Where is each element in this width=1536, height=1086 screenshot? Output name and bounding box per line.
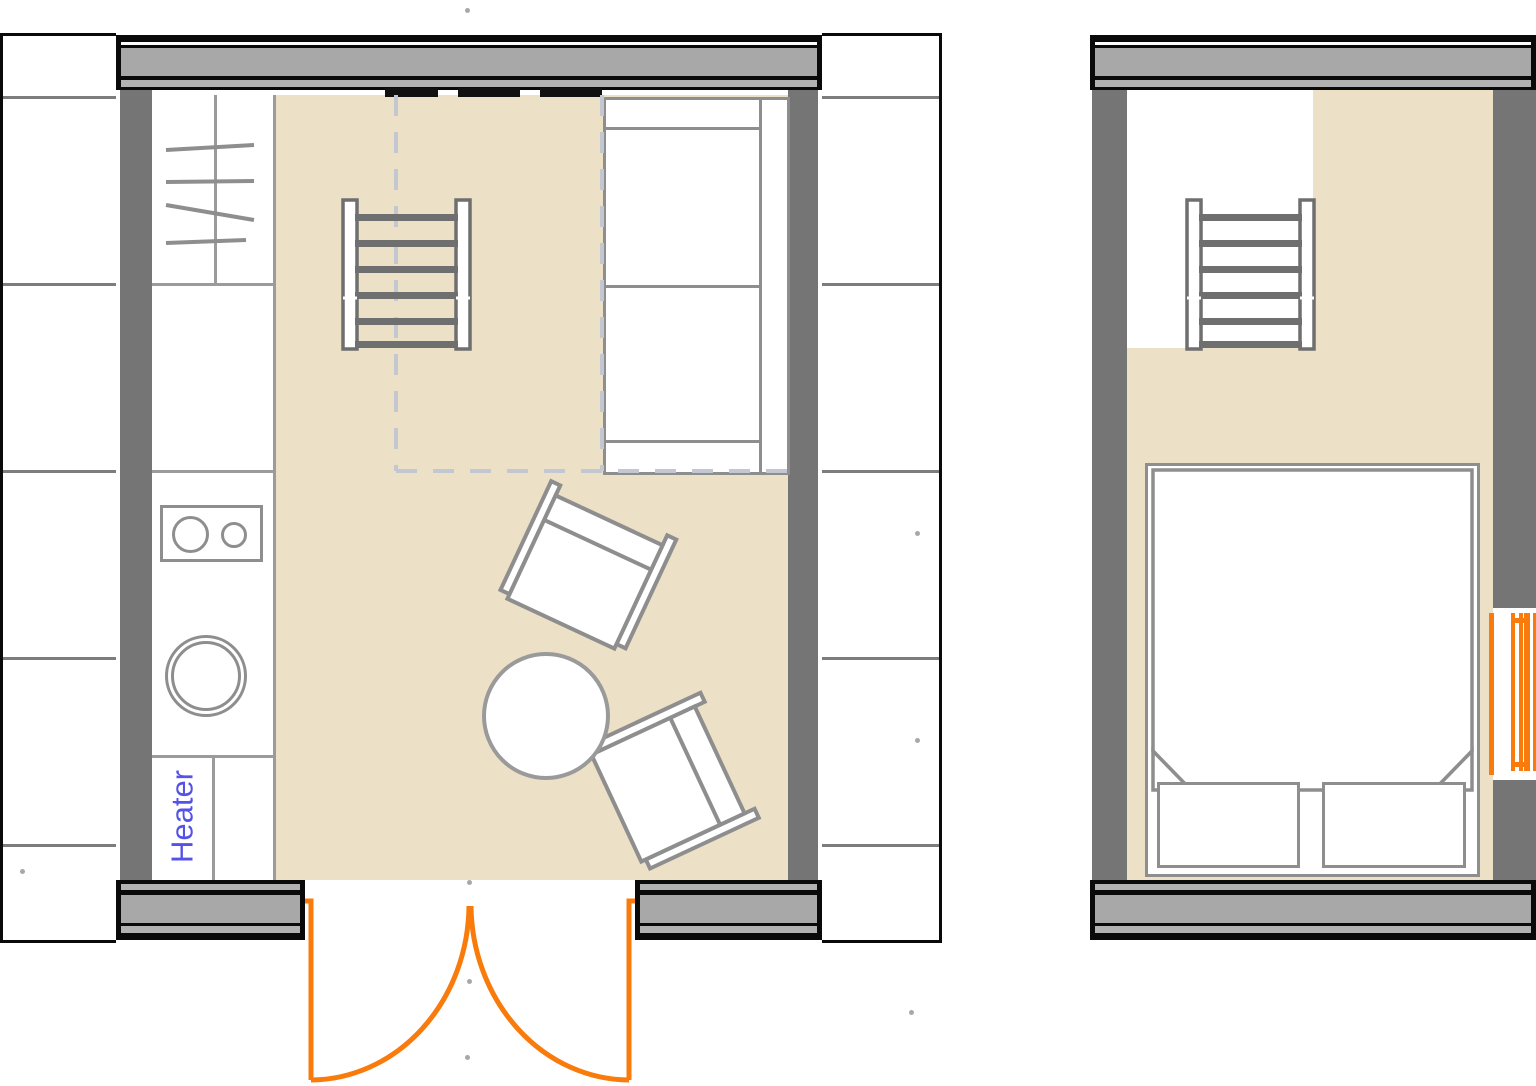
reference-dot xyxy=(467,979,472,984)
reference-dot xyxy=(465,8,470,13)
reference-dot xyxy=(909,1010,914,1015)
armchair-1[interactable] xyxy=(498,481,676,653)
round-table[interactable] xyxy=(484,654,608,778)
reference-dot xyxy=(465,1055,470,1060)
kitchen-rack-icon xyxy=(166,145,254,243)
pillow-left[interactable] xyxy=(1157,782,1300,868)
entry-double-door[interactable] xyxy=(305,901,635,1080)
reference-dot xyxy=(20,869,25,874)
reference-dot xyxy=(915,531,920,536)
stairs-icon-left-room[interactable] xyxy=(343,200,470,349)
door-swing-arc-left xyxy=(311,906,469,1080)
reference-dot xyxy=(467,880,472,885)
symbol-overlay xyxy=(0,0,1536,1086)
door-leaf-left xyxy=(305,901,311,1080)
pillow-right[interactable] xyxy=(1322,782,1466,868)
stairs-icon-right-room[interactable] xyxy=(1187,200,1314,349)
blanket xyxy=(1153,470,1472,790)
reference-dot xyxy=(915,738,920,743)
armchair-2[interactable] xyxy=(587,693,759,871)
floor-plan-canvas: Heater xyxy=(0,0,1536,1086)
heater-label: Heater xyxy=(155,760,210,872)
door-leaf-right xyxy=(629,901,635,1080)
radiator-icon[interactable] xyxy=(1489,613,1536,775)
door-swing-arc-right xyxy=(471,906,629,1080)
